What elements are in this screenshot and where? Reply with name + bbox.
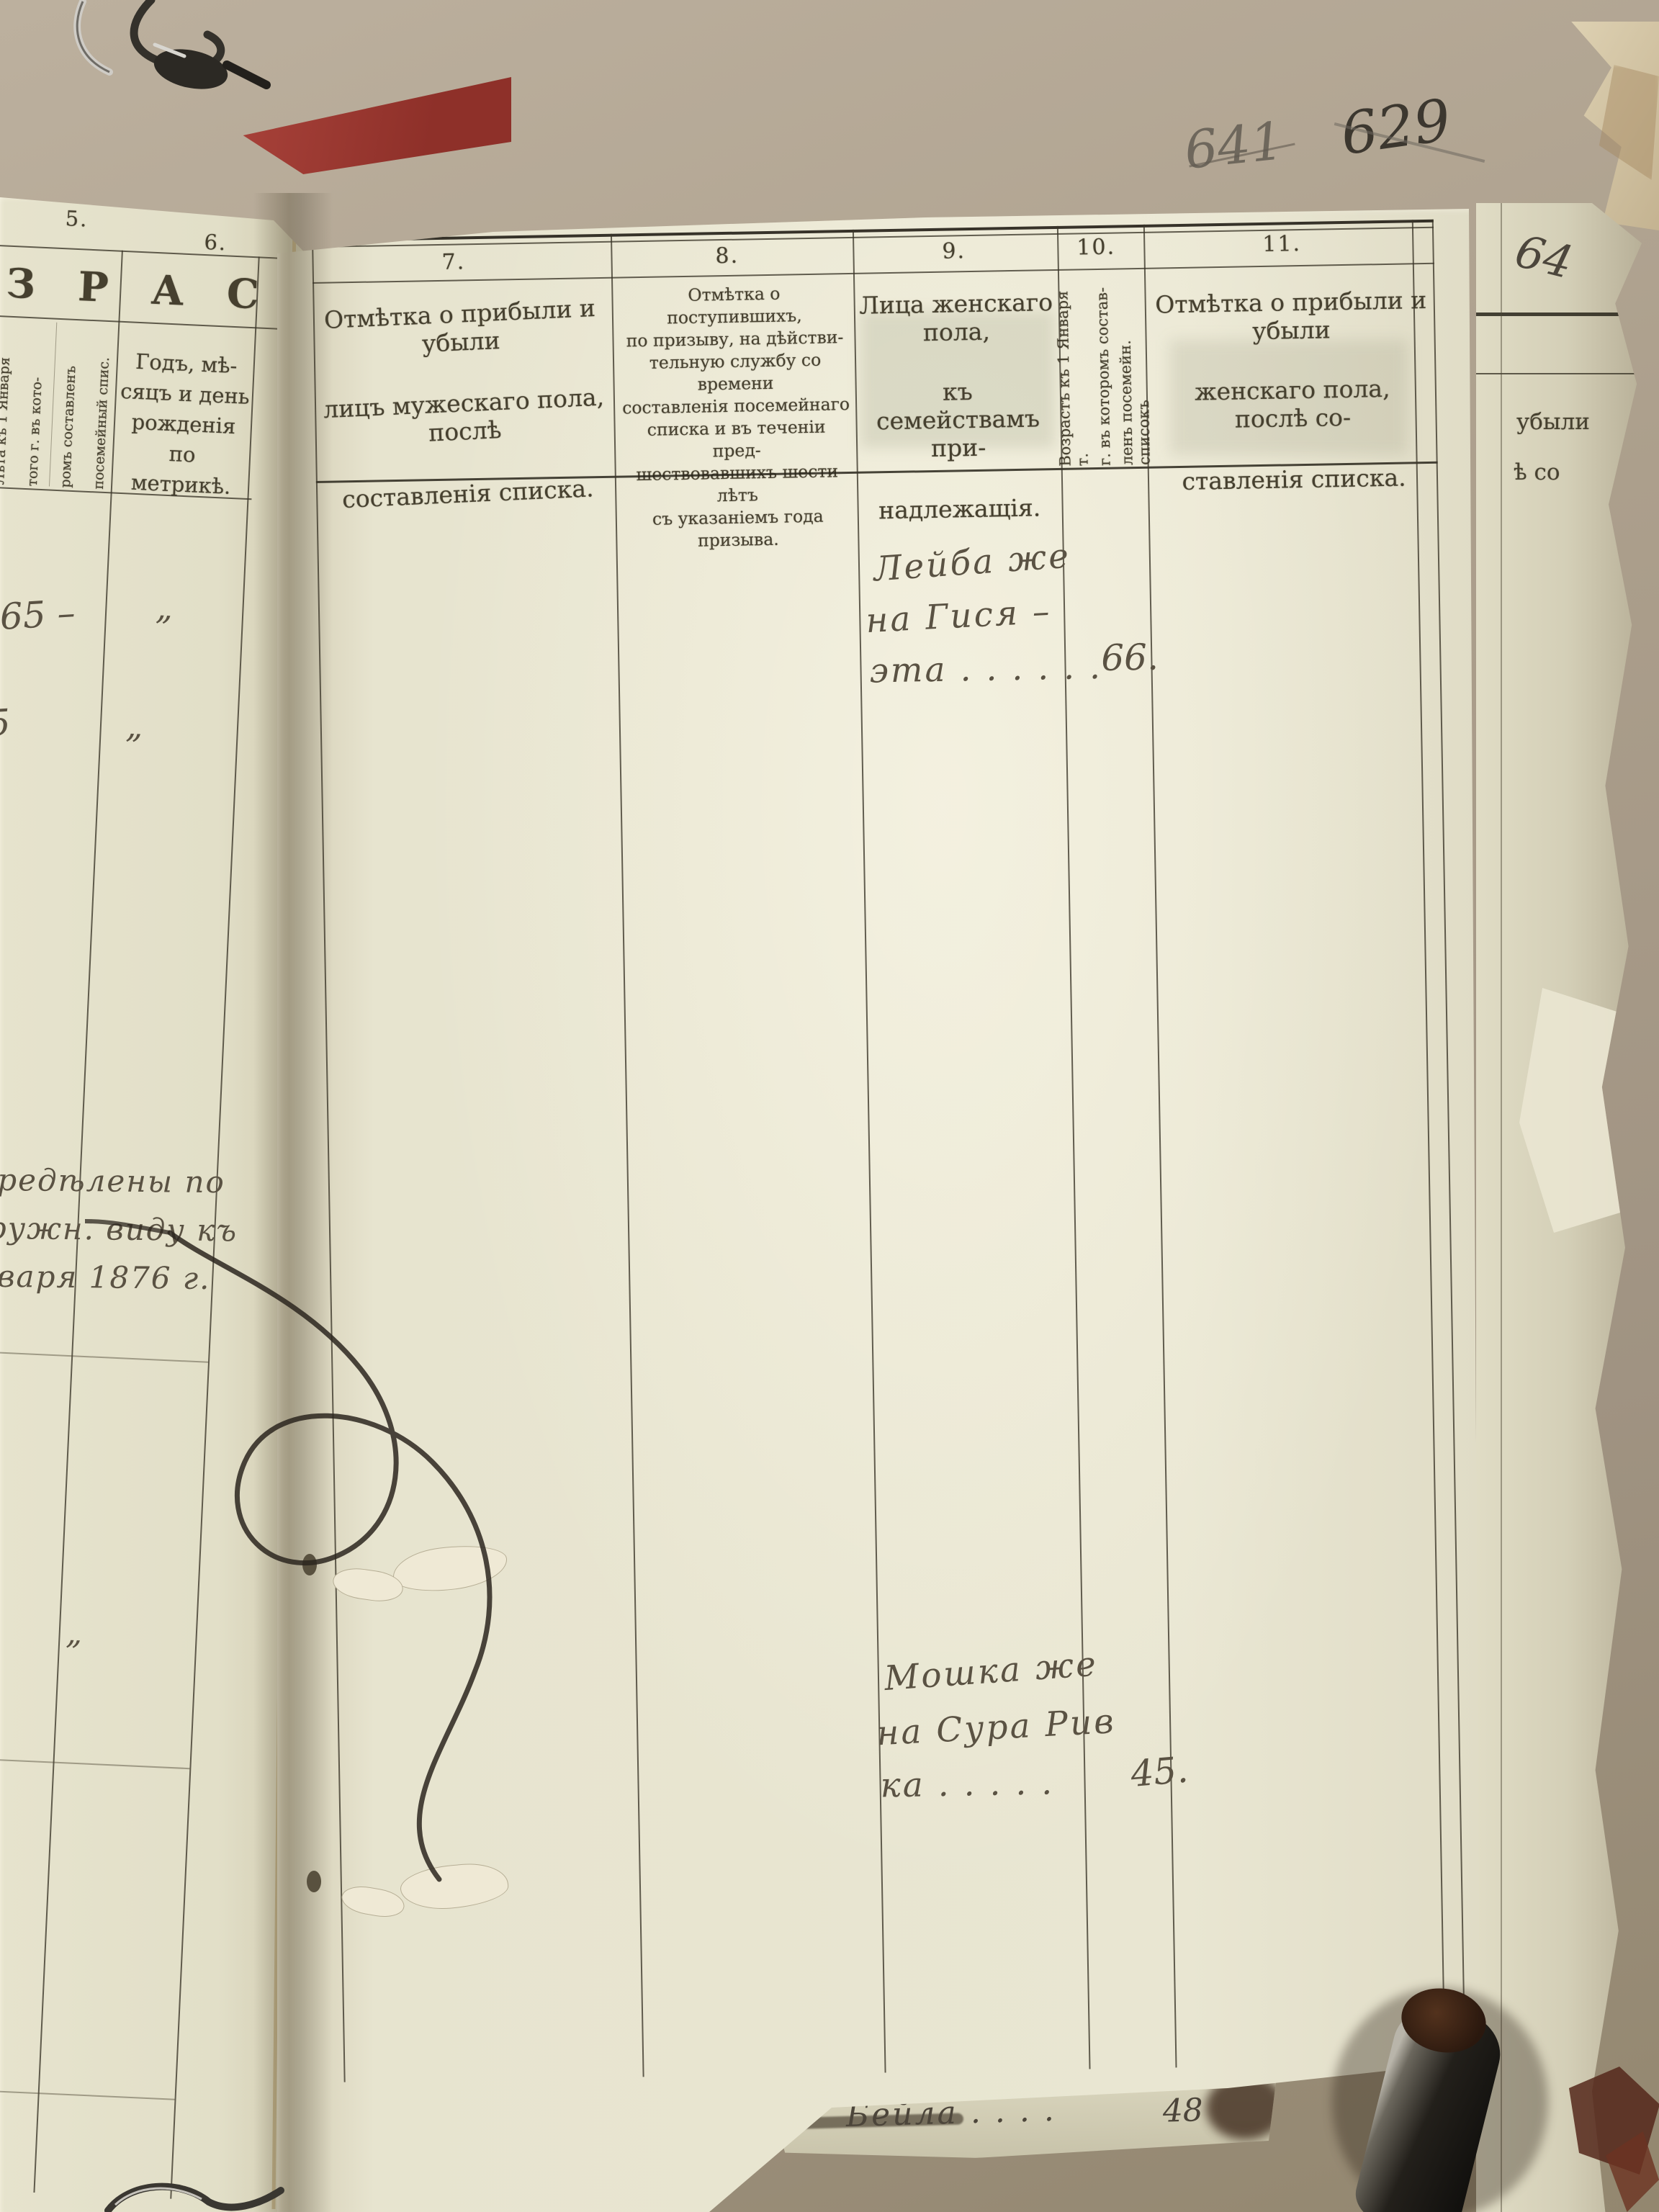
col8-header-line-5: списка и въ теченіи пред-: [621, 415, 851, 464]
entry1-line-1: Лейба же: [872, 536, 1071, 590]
left-col6-header: Годъ, мѣ- сяцъ и день рожденія по метрик…: [114, 346, 252, 503]
gutter-shadow: [253, 193, 333, 2212]
paper-clip-icon: [43, 0, 389, 187]
col9-header-line-1: Лица женскаго пола,: [857, 288, 1055, 348]
entry1-age: 66.: [1101, 637, 1159, 679]
col11-header-line-3: ставленія списка.: [1157, 463, 1431, 496]
col8-header-line-1: Отмѣтка о поступившихъ,: [619, 282, 849, 331]
entry2-age: 45.: [1129, 1748, 1190, 1795]
entry2-line-3: ка . . . . .: [880, 1763, 1054, 1805]
left-entry-ditto-1: „: [155, 588, 174, 627]
col8-header-line-7: съ указаніемъ года: [624, 505, 853, 531]
left-col6-line-3: рожденія по: [116, 406, 250, 472]
entry1-line-2: на Гися –: [865, 592, 1053, 641]
stitch-hole: [302, 1554, 317, 1575]
col11-header-line-2: женскаго пола, послѣ со-: [1156, 374, 1430, 435]
stitch-hole: [307, 1871, 321, 1892]
right-page-table: 7. 8. 9. 10. 11. Отмѣтка о прибыли и убы…: [312, 220, 1465, 2082]
right-page: 7. 8. 9. 10. 11. Отмѣтка о прибыли и убы…: [277, 203, 1487, 2212]
col9-header-line-2: къ семействамъ при-: [859, 376, 1058, 464]
col10-header: Возрастъ къ 1 Января т. г. въ которомъ с…: [1063, 272, 1144, 467]
col8-header-line-6: шествовавшихъ шести лѣтъ: [623, 460, 853, 509]
left-entry-age-1: 65 –: [0, 592, 76, 638]
torn-flap: [1519, 988, 1635, 1233]
col-number-9: 9.: [942, 238, 966, 264]
under-page-number-fragment: 64: [1510, 225, 1578, 289]
left-note-line-2: наружн. виду къ: [0, 1210, 238, 1248]
bottom-slip-age: 48: [1162, 2092, 1203, 2130]
col-number-10: 10.: [1076, 235, 1115, 261]
left-entry-ditto-2: „: [125, 706, 144, 746]
left-note: опредѣлены по наружн. виду къ Января 187…: [0, 1161, 238, 1296]
left-col-number-6: 6.: [204, 230, 228, 255]
left-col5-header: Лѣта къ 1 Января того г. въ кото- ромъ с…: [0, 323, 114, 490]
page-number-old: 641: [1182, 110, 1286, 181]
col9-header-line-3: надлежащія.: [860, 493, 1058, 525]
left-col5-line-4: посемейный спис.: [91, 327, 114, 490]
col8-header-line-3: тельную службу со времени: [621, 349, 850, 397]
entry2-line-2: на Сура Рив: [876, 1701, 1117, 1753]
entry2-line-1: Мошка же: [883, 1645, 1099, 1699]
left-col5-line-3: ромъ составленъ: [58, 325, 81, 488]
entry1-line-3: эта . . . . . .: [869, 647, 1102, 691]
left-col5-line-1: Лѣта къ 1 Января: [0, 323, 14, 485]
binding-wire-icon: [72, 2169, 302, 2212]
left-entry-age-2: 25: [0, 701, 12, 746]
col7-header-line-1: Отмѣтка о прибыли и убыли: [316, 293, 605, 362]
left-col-number-5: 5.: [65, 206, 89, 231]
left-note-line-1: опредѣлены по: [0, 1161, 238, 1200]
col8-header-line-8: призыва.: [624, 527, 853, 554]
col8-header: Отмѣтка о поступившихъ, по призыву, на д…: [619, 282, 853, 553]
col-number-8: 8.: [715, 243, 739, 269]
under-page-strip: 64 убыли ѣ со: [1476, 203, 1642, 2212]
col-number-11: 11.: [1262, 231, 1301, 257]
under-page-text-1: убыли: [1516, 409, 1590, 435]
archival-book-photo: 64 убыли ѣ со Бейла . . . . 48 5. 6. З Р…: [0, 0, 1659, 2212]
col-number-7: 7.: [441, 249, 465, 275]
under-page-text-2: ѣ со: [1514, 459, 1560, 485]
left-entry-ditto-3: „: [66, 1614, 84, 1652]
col7-header-line-2: лицъ мужескаго пола, послѣ: [320, 382, 608, 451]
left-col5-line-2: того г. въ кото-: [24, 324, 48, 487]
col9-header: Лица женскаго пола, къ семействамъ при- …: [857, 288, 1058, 525]
col11-header-line-1: Отмѣтка о прибыли и убыли: [1154, 286, 1428, 347]
left-note-line-3: Января 1876 г.: [0, 1258, 238, 1296]
col10-header-line-2: г. въ которомъ состав-: [1093, 273, 1114, 466]
